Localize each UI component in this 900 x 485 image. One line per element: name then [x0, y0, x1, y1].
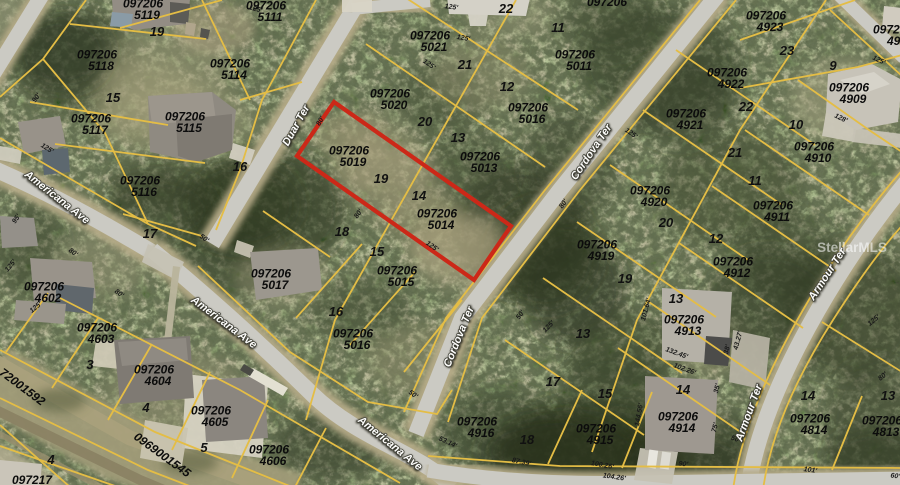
svg-text:19: 19: [374, 171, 389, 186]
svg-text:16: 16: [329, 304, 344, 319]
svg-text:StellarMLS: StellarMLS: [817, 240, 887, 255]
svg-text:5016: 5016: [519, 112, 546, 126]
svg-text:5019: 5019: [340, 155, 367, 169]
svg-text:15: 15: [370, 244, 385, 259]
svg-text:20: 20: [417, 114, 433, 129]
svg-text:20: 20: [658, 215, 674, 230]
svg-text:18: 18: [335, 224, 350, 239]
svg-text:22: 22: [498, 1, 514, 16]
svg-text:5114: 5114: [221, 68, 247, 82]
svg-text:13: 13: [881, 388, 896, 403]
svg-text:4921: 4921: [676, 118, 704, 132]
svg-text:13: 13: [451, 130, 466, 145]
svg-text:5021: 5021: [421, 40, 448, 54]
svg-text:11: 11: [748, 173, 762, 188]
svg-text:4913: 4913: [674, 324, 702, 338]
svg-text:5115: 5115: [176, 121, 202, 135]
svg-text:4912: 4912: [723, 266, 751, 280]
svg-text:90': 90': [678, 460, 689, 468]
svg-text:19: 19: [150, 24, 165, 39]
svg-text:5014: 5014: [428, 218, 455, 232]
svg-text:4605: 4605: [201, 415, 229, 429]
svg-text:3: 3: [86, 357, 94, 372]
svg-text:4909: 4909: [839, 92, 867, 106]
svg-text:4910: 4910: [804, 151, 832, 165]
svg-text:5013: 5013: [471, 161, 498, 175]
svg-text:490: 490: [886, 34, 900, 48]
svg-text:4923: 4923: [756, 20, 784, 34]
svg-text:4603: 4603: [87, 332, 115, 346]
svg-text:15: 15: [106, 90, 121, 105]
svg-text:18: 18: [520, 432, 535, 447]
svg-text:4604: 4604: [144, 374, 172, 388]
svg-text:097217: 097217: [12, 473, 53, 485]
svg-text:14: 14: [801, 388, 816, 403]
svg-text:4915: 4915: [586, 433, 614, 447]
svg-text:5011: 5011: [566, 59, 592, 73]
svg-text:5117: 5117: [82, 123, 109, 137]
svg-text:14: 14: [412, 188, 427, 203]
svg-text:5: 5: [200, 440, 208, 455]
svg-text:11: 11: [551, 20, 565, 35]
svg-text:4814: 4814: [800, 423, 828, 437]
svg-text:17: 17: [546, 374, 561, 389]
svg-text:4922: 4922: [717, 77, 745, 91]
svg-text:12: 12: [709, 231, 724, 246]
svg-text:4813: 4813: [872, 425, 900, 439]
svg-text:5016: 5016: [344, 338, 371, 352]
svg-text:4606: 4606: [259, 454, 287, 468]
svg-text:5015: 5015: [388, 275, 415, 289]
svg-text:5116: 5116: [131, 185, 157, 199]
svg-text:10: 10: [789, 117, 804, 132]
svg-text:22: 22: [738, 99, 754, 114]
svg-text:5017: 5017: [262, 278, 290, 292]
svg-text:4920: 4920: [640, 195, 668, 209]
svg-text:21: 21: [727, 145, 742, 160]
svg-text:9: 9: [829, 58, 837, 73]
svg-text:5118: 5118: [88, 59, 114, 73]
svg-text:16: 16: [233, 159, 248, 174]
svg-text:23: 23: [779, 43, 795, 58]
svg-text:5119: 5119: [134, 8, 160, 22]
svg-text:14: 14: [676, 382, 691, 397]
svg-text:097206: 097206: [587, 0, 627, 9]
svg-text:4911: 4911: [763, 210, 790, 224]
svg-text:60': 60': [890, 472, 900, 480]
svg-text:4919: 4919: [587, 249, 615, 263]
svg-text:12: 12: [500, 79, 515, 94]
svg-text:13: 13: [669, 291, 684, 306]
svg-text:15: 15: [598, 386, 613, 401]
svg-text:21: 21: [457, 57, 472, 72]
svg-text:4916: 4916: [467, 426, 495, 440]
svg-text:4: 4: [46, 452, 55, 467]
svg-text:5020: 5020: [381, 98, 408, 112]
svg-text:13: 13: [576, 326, 591, 341]
svg-text:17: 17: [143, 226, 158, 241]
svg-text:4914: 4914: [668, 421, 696, 435]
svg-text:19: 19: [618, 271, 633, 286]
svg-text:4: 4: [141, 400, 150, 415]
